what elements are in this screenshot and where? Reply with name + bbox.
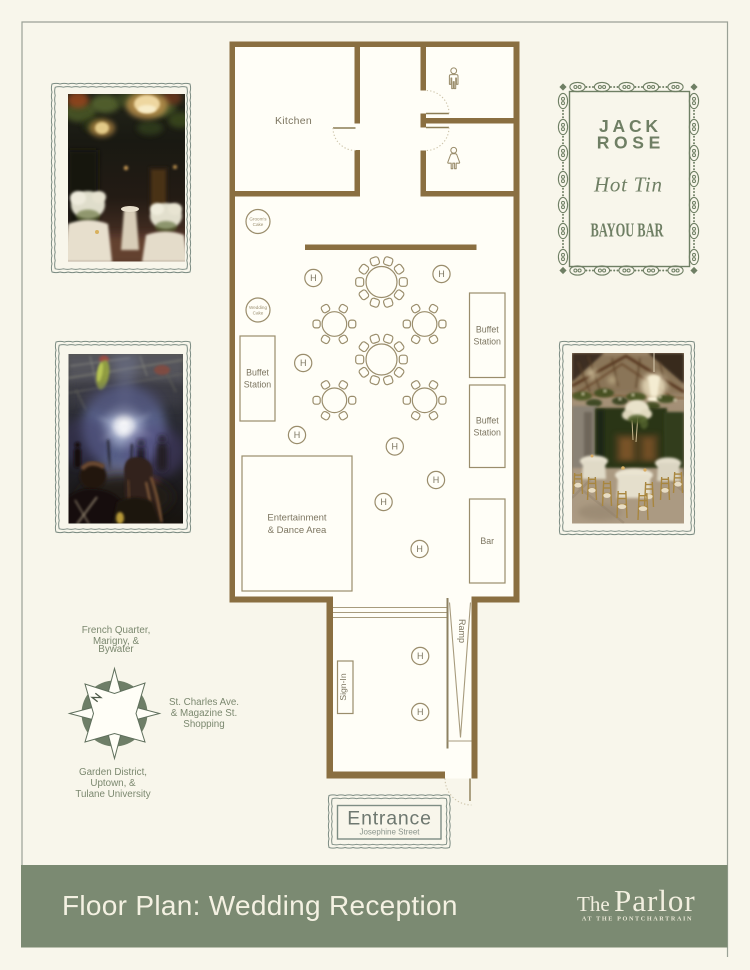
svg-text:Hot Tin: Hot Tin	[593, 173, 662, 197]
svg-text:Station: Station	[474, 427, 501, 437]
svg-text:& Dance Area: & Dance Area	[268, 525, 327, 536]
svg-text:Josephine Street: Josephine Street	[359, 828, 420, 837]
svg-text:Entrance: Entrance	[347, 808, 431, 830]
svg-text:Sign-In: Sign-In	[338, 673, 348, 700]
svg-text:Kitchen: Kitchen	[275, 115, 312, 127]
svg-text:Buffet: Buffet	[246, 368, 269, 378]
svg-text:H: H	[294, 430, 301, 440]
svg-text:Cake: Cake	[253, 222, 264, 227]
svg-text:H: H	[417, 707, 424, 717]
svg-text:The: The	[577, 892, 610, 916]
svg-text:Station: Station	[474, 336, 501, 346]
svg-text:Cake: Cake	[253, 311, 264, 316]
svg-text:H: H	[392, 442, 399, 452]
svg-text:Uptown, &: Uptown, &	[90, 778, 136, 789]
svg-text:Garden District,: Garden District,	[79, 767, 147, 778]
svg-text:Ramp: Ramp	[457, 619, 467, 643]
svg-text:H: H	[417, 651, 424, 661]
svg-text:Shopping: Shopping	[183, 719, 224, 730]
svg-text:BAYOU BAR: BAYOU BAR	[591, 220, 664, 242]
svg-text:H: H	[380, 497, 387, 507]
svg-text:AT THE PONTCHARTRAIN: AT THE PONTCHARTRAIN	[582, 916, 693, 923]
svg-text:H: H	[416, 544, 423, 554]
svg-text:St. Charles Ave.: St. Charles Ave.	[169, 697, 239, 708]
svg-text:Entertainment: Entertainment	[267, 513, 327, 524]
svg-text:French Quarter,: French Quarter,	[82, 625, 151, 636]
svg-text:Station: Station	[244, 380, 271, 390]
svg-text:& Magazine St.: & Magazine St.	[171, 708, 237, 719]
svg-text:H: H	[438, 269, 445, 279]
svg-text:H: H	[310, 273, 317, 283]
svg-text:Wedding: Wedding	[249, 305, 267, 310]
svg-text:Groom's: Groom's	[249, 217, 267, 222]
svg-text:Tulane University: Tulane University	[75, 789, 150, 800]
svg-text:Bywater: Bywater	[98, 644, 134, 655]
svg-text:Bar: Bar	[480, 536, 494, 546]
svg-text:H: H	[300, 358, 307, 368]
svg-text:Buffet: Buffet	[476, 324, 499, 334]
svg-text:Floor Plan: Wedding Reception: Floor Plan: Wedding Reception	[62, 890, 458, 921]
svg-text:Parlor: Parlor	[614, 883, 696, 918]
svg-text:Buffet: Buffet	[476, 415, 499, 425]
svg-text:H: H	[433, 475, 440, 485]
